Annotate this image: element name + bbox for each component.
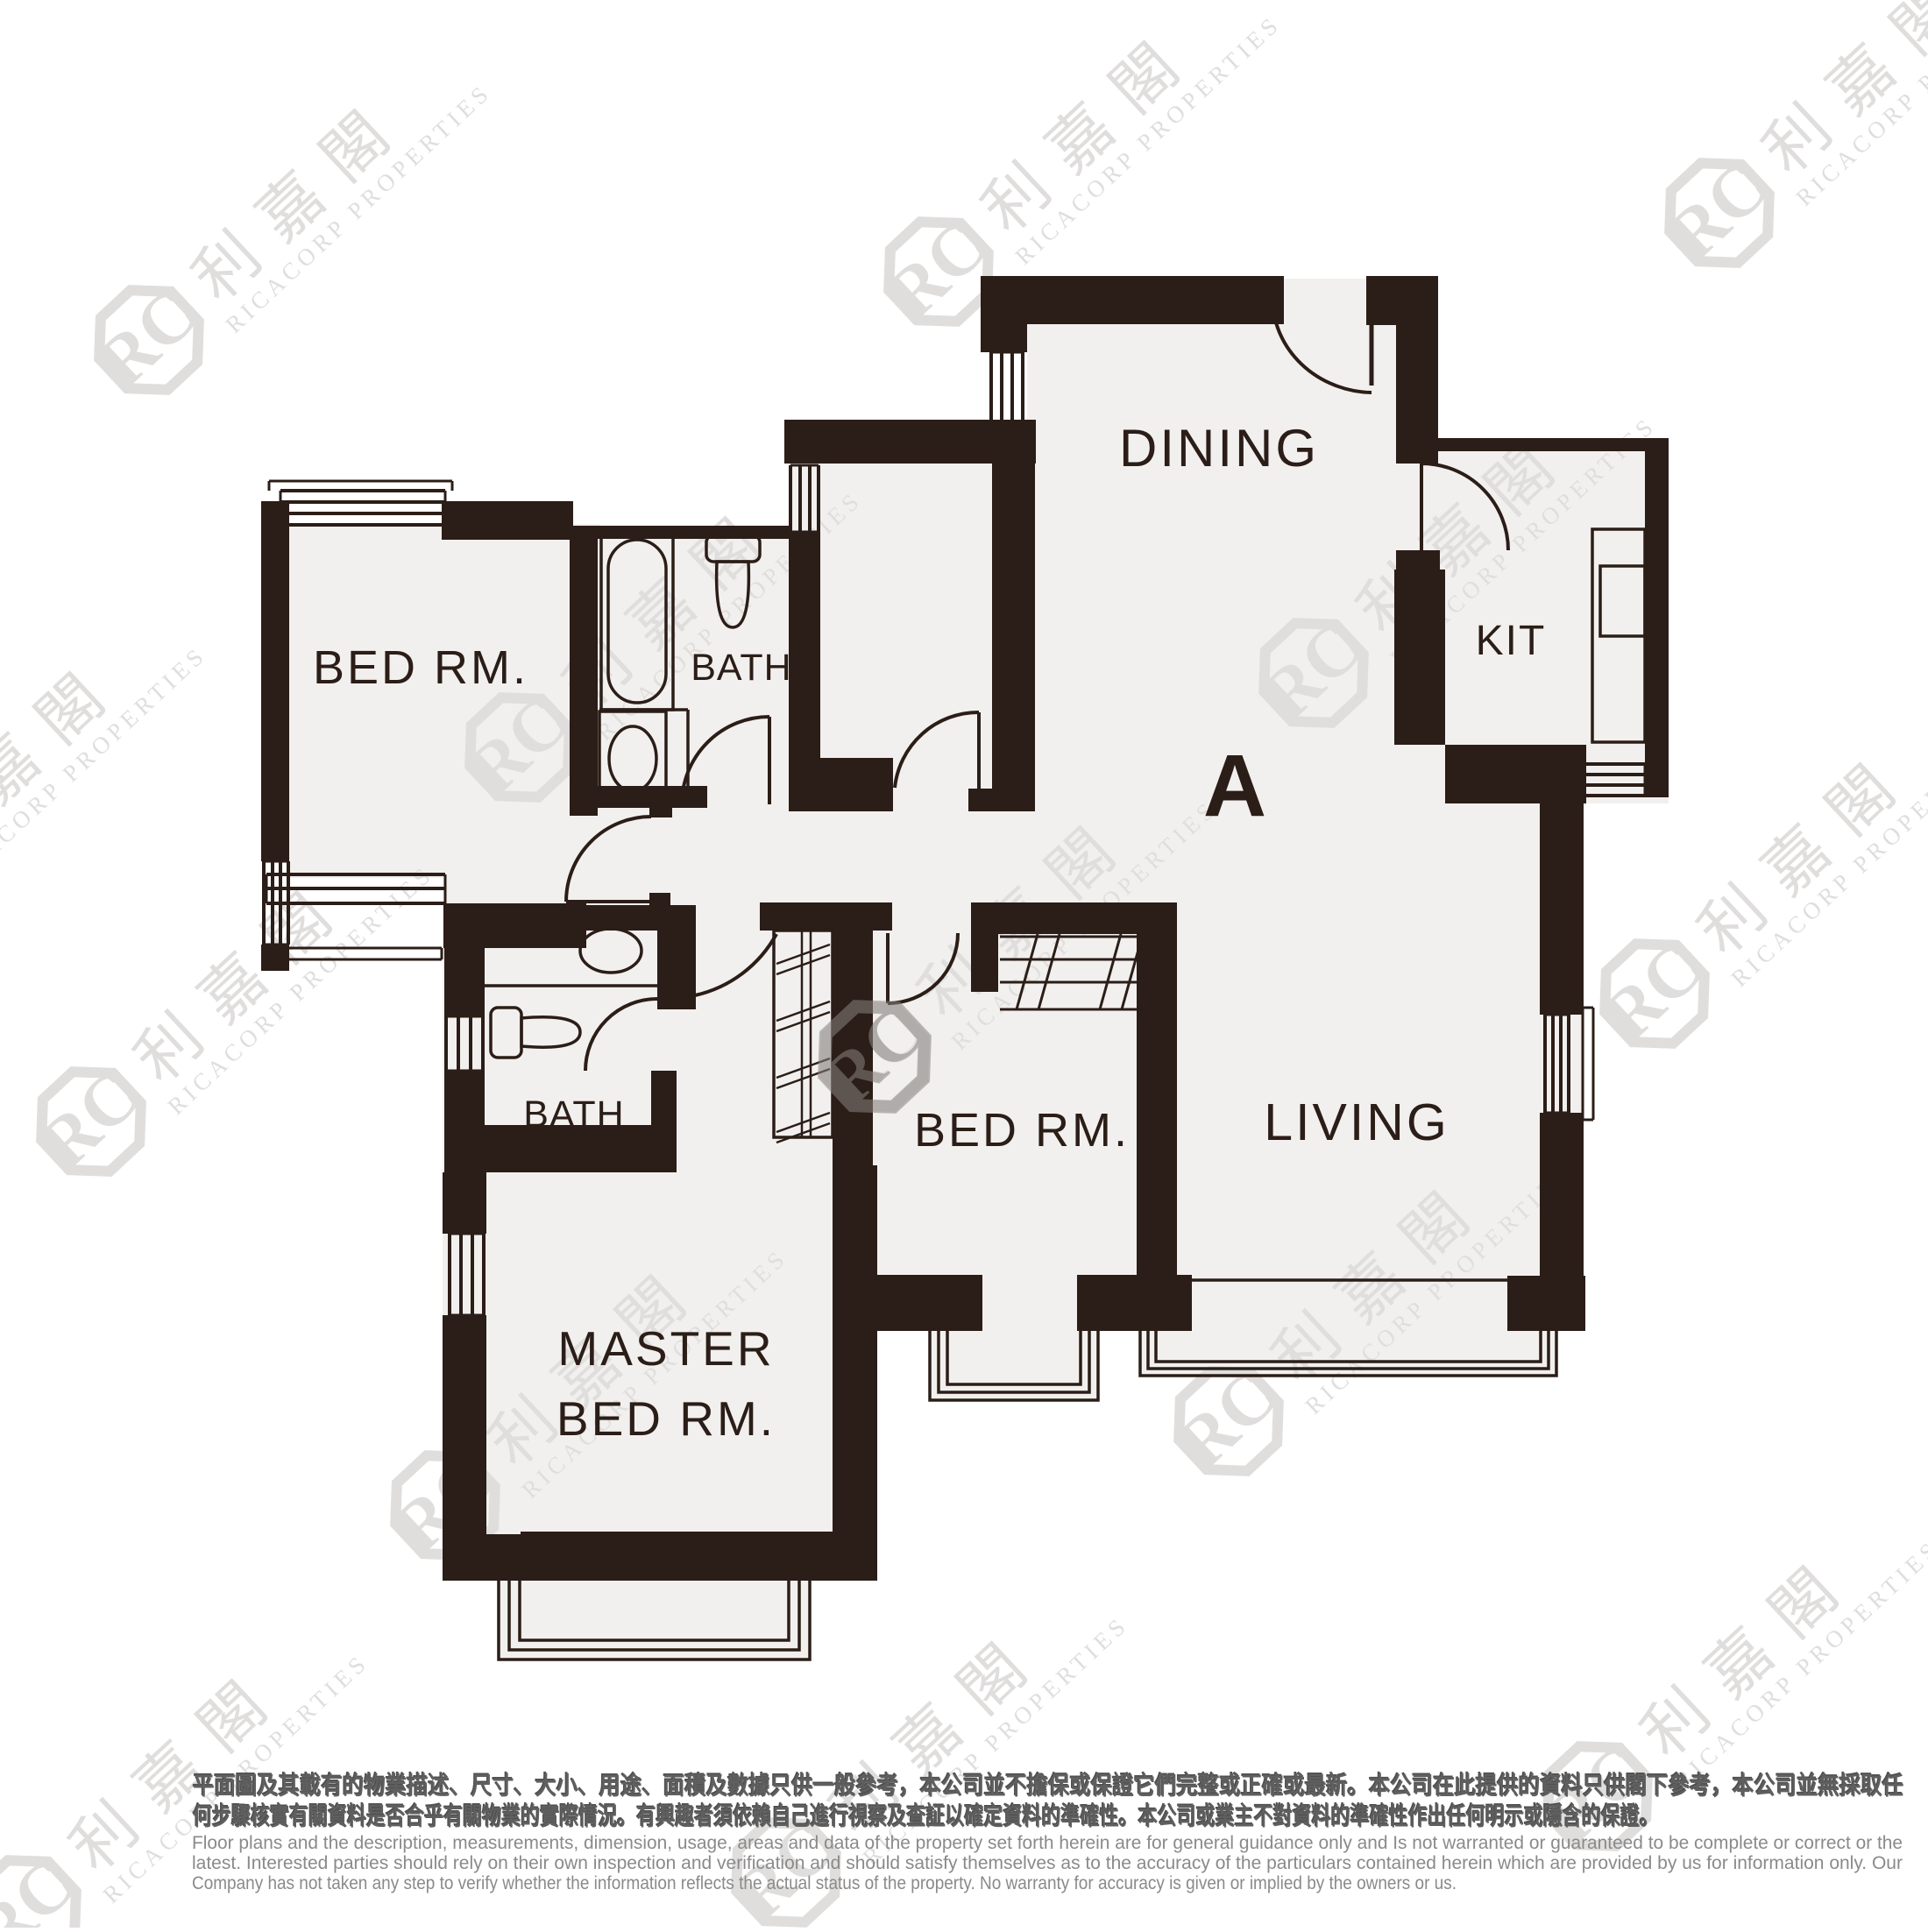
svg-text:latest. Interested parties sho: latest. Interested parties should rely o… bbox=[192, 1853, 1903, 1873]
svg-text:何步驟核實有關資料是否合乎有關物業的實際情況。有興趣者須依賴: 何步驟核實有關資料是否合乎有關物業的實際情況。有興趣者須依賴自己進行視察及查証以… bbox=[193, 1801, 1659, 1829]
svg-text:A: A bbox=[1203, 737, 1266, 835]
svg-text:平面圖及其載有的物業描述、尺寸、大小、用途、面積及數據只供一: 平面圖及其載有的物業描述、尺寸、大小、用途、面積及數據只供一般參考，本公司並不擔… bbox=[193, 1771, 1903, 1799]
svg-text:BATH: BATH bbox=[523, 1093, 625, 1136]
svg-text:BED RM.: BED RM. bbox=[313, 641, 528, 694]
svg-text:BED RM.: BED RM. bbox=[556, 1391, 776, 1446]
svg-text:BATH: BATH bbox=[691, 647, 792, 689]
svg-text:KIT: KIT bbox=[1476, 618, 1547, 664]
svg-text:DINING: DINING bbox=[1119, 419, 1319, 478]
svg-text:MASTER: MASTER bbox=[557, 1321, 774, 1376]
svg-text:Company has not taken any step: Company has not taken any step to verify… bbox=[192, 1873, 1457, 1893]
svg-text:BED RM.: BED RM. bbox=[914, 1104, 1130, 1157]
svg-text:Floor plans and the descriptio: Floor plans and the description, measure… bbox=[192, 1833, 1903, 1853]
svg-text:LIVING: LIVING bbox=[1264, 1093, 1449, 1151]
